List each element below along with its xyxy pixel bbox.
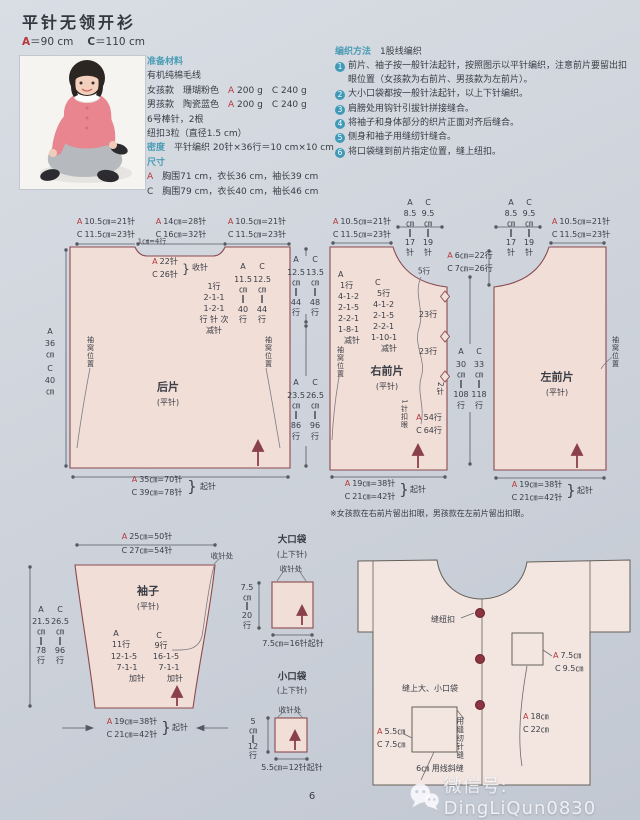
lf-name: 左前片 xyxy=(541,372,574,383)
sleeve-name: 袖子 xyxy=(137,586,159,597)
rf-dec-a-hdr: A xyxy=(338,271,343,279)
page-number: 6 xyxy=(309,792,315,802)
mid-top-unit-a: 行 xyxy=(292,309,300,317)
rf-top-a: A10.5㎝=21针 xyxy=(333,218,391,226)
sleeve-len-eq-c: ‖ xyxy=(58,637,62,645)
rf-dec-c-6: 减针 xyxy=(381,345,397,353)
mid-bot-eq-a: ‖ xyxy=(294,411,298,419)
sleeve-len-eq-a: ‖ xyxy=(39,637,43,645)
rf-dec-c-3: 2-1-5 xyxy=(373,312,394,320)
back-depth-val-c: 12.5 xyxy=(253,276,271,284)
pattern-page: 平针无领开衫 A＝90 cmC＝110 cm xyxy=(0,0,640,820)
mid-top-rows-c: 48 xyxy=(310,299,320,307)
mid-top-hdr-a: A xyxy=(293,256,298,264)
gap-cm-a: ㎝ xyxy=(457,371,465,379)
back-cast-label: 起针 xyxy=(200,483,216,491)
sleeve-inc-c-2: 16-1-5 xyxy=(153,653,179,661)
back-depth-unit-a: 行 xyxy=(239,316,247,324)
back-depth-hdr-c: C xyxy=(259,263,265,271)
lf-sh-sts-a: 17 xyxy=(506,239,516,247)
mid-top-eq-c: ‖ xyxy=(313,288,317,296)
rf-sh-eq-a: ‖ xyxy=(408,229,412,237)
gap-eq-c: ‖ xyxy=(477,380,481,388)
garment-lpocket-a: A5.5㎝ xyxy=(377,728,405,736)
back-len-c: C xyxy=(47,365,53,373)
back-depth-eq-c: ‖ xyxy=(260,295,264,303)
spocket-h-rows: 12 xyxy=(248,743,258,751)
gap-cm-c: ㎝ xyxy=(475,371,483,379)
sleeve-inc-a-hdr: A xyxy=(113,630,118,638)
rf-23r-1: 23行 xyxy=(419,311,437,319)
sleeve-inc-c-1: 9行 xyxy=(154,642,167,650)
sleeve-len-unit-c: 行 xyxy=(56,657,64,665)
lf-cast-brace: } xyxy=(566,484,576,499)
garment-pockets-label: 缝上大、小口袋 xyxy=(402,685,458,693)
back-len-c-val: 40 xyxy=(45,377,55,385)
rf-dec-a-4: 2-2-1 xyxy=(338,315,359,323)
rf-sh-sts-c: 19 xyxy=(423,239,433,247)
lf-sh-cm-a: ㎝ xyxy=(507,220,515,228)
back-name-sub: (平针) xyxy=(157,399,179,407)
sleeve-cast-c: C21㎝=42针 xyxy=(107,731,158,739)
rf-sh-unit-c: 针 xyxy=(424,249,432,257)
back-depth-rows-a: 40 xyxy=(238,306,248,314)
back-neck-brace: } xyxy=(182,263,190,275)
rf-dec-a-1: 1行 xyxy=(340,282,353,290)
spocket-sub: (上下针) xyxy=(277,687,307,695)
back-top-left-a: A10.5㎝=21针 xyxy=(77,218,135,226)
rf-sh-sts-a: 17 xyxy=(405,239,415,247)
lf-sh-val-c: 9.5 xyxy=(523,210,536,218)
rf-23r-2: 23行 xyxy=(419,348,437,356)
rf-dec-a-3: 2-1-5 xyxy=(338,304,359,312)
sleeve-len-val-a: 21.5 xyxy=(32,618,50,626)
gap-unit-a: 行 xyxy=(457,402,465,410)
rf-armhole: 袖窝位置 xyxy=(337,346,344,378)
sleeve-inc-a-4: 加针 xyxy=(129,675,145,683)
lpocket-cast: 7.5㎝=16针起针 xyxy=(262,640,324,648)
lpocket-name: 大口袋 xyxy=(278,535,307,545)
lf-top-c: C11.5㎝=23针 xyxy=(552,231,610,239)
garment-rpocket-c: C9.5㎝ xyxy=(555,665,583,673)
gap-val-a: 30 xyxy=(456,361,466,369)
sleeve-top-c: C27㎝=54针 xyxy=(122,547,173,555)
mid-bot-val-a: 23.5 xyxy=(287,392,305,400)
garment-rpocket-a: A7.5㎝ xyxy=(553,652,581,660)
left-front-piece-shape xyxy=(494,247,606,470)
mid-bot-val-c: 26.5 xyxy=(306,392,324,400)
lf-sh-unit-c: 针 xyxy=(525,249,533,257)
sleeve-len-rows-a: 78 xyxy=(36,647,46,655)
gap-neck-a: A6㎝=22行 xyxy=(447,252,492,260)
lf-sh-cm-c: ㎝ xyxy=(525,220,533,228)
spocket-h-unit: 行 xyxy=(249,752,257,760)
gap-rows-a: 108 xyxy=(453,391,468,399)
spocket-h-val: 5 xyxy=(250,718,255,726)
back-len-c-cm: ㎝ xyxy=(46,388,54,396)
rf-54: A54行 xyxy=(416,414,442,422)
back-top-right-c: C11.5㎝=23针 xyxy=(228,231,286,239)
garment-pos-a: A18㎝ xyxy=(523,713,549,721)
lf-sh-val-a: 8.5 xyxy=(505,210,518,218)
sleeve-inc-c-hdr: C xyxy=(156,632,162,640)
sleeve-inc-c-4: 加针 xyxy=(167,675,183,683)
lf-sh-eq-a: ‖ xyxy=(509,229,513,237)
rf-sh-unit-a: 针 xyxy=(406,249,414,257)
sleeve-len-hdr-a: A xyxy=(38,606,43,614)
sleeve-len-rows-c: 96 xyxy=(55,647,65,655)
back-len-a-val: 36 xyxy=(45,340,55,348)
back-len-a-cm: ㎝ xyxy=(46,351,54,359)
back-cast-a: A35㎝=70针 xyxy=(132,476,183,484)
spocket-name: 小口袋 xyxy=(278,672,307,682)
back-neck-dec-3: 行 针 次 xyxy=(199,316,228,324)
back-depth-cm-c: ㎝ xyxy=(258,286,266,294)
back-neck-dec-2: 1-2-1 xyxy=(203,305,224,313)
rf-sh-val-a: 8.5 xyxy=(404,210,417,218)
spocket-cast: 5.5㎝=12针起针 xyxy=(261,764,323,772)
garment-sew-label: 用缝纫针缝 xyxy=(456,717,464,760)
sleeve-name-sub: (平针) xyxy=(137,603,159,611)
mid-bot-cm-a: ㎝ xyxy=(292,402,300,410)
back-top-right-a: A10.5㎝=21针 xyxy=(228,218,286,226)
rf-name-sub: (平针) xyxy=(376,383,398,391)
rf-name: 右前片 xyxy=(371,366,404,377)
rf-dec-a-5: 1-8-1 xyxy=(338,326,359,334)
sleeve-bindoff: 收针处 xyxy=(211,552,234,560)
back-depth-cm-a: ㎝ xyxy=(239,286,247,294)
rf-dec-c-4: 2-2-1 xyxy=(373,323,394,331)
sleeve-cast-brace: } xyxy=(161,721,171,736)
rf-cast-label: 起针 xyxy=(410,486,426,494)
gap-rows-c: 118 xyxy=(471,391,486,399)
mid-bot-hdr-a: A xyxy=(293,379,298,387)
back-len-a: A xyxy=(47,328,52,336)
mid-bot-unit-c: 行 xyxy=(311,433,319,441)
back-cast-brace: } xyxy=(187,480,197,495)
rf-dec-a-6: 减针 xyxy=(344,337,360,345)
mid-top-cm-a: ㎝ xyxy=(292,279,300,287)
back-name: 后片 xyxy=(157,382,179,393)
rf-dec-c-1: 5行 xyxy=(377,290,390,298)
rf-top-c: C11.5㎝=23针 xyxy=(333,231,391,239)
mid-top-val-a: 12.5 xyxy=(287,269,305,277)
rf-sh-val-c: 9.5 xyxy=(422,210,435,218)
sleeve-len-cm-c: ㎝ xyxy=(56,628,64,636)
lf-armhole: 袖窝位置 xyxy=(612,336,619,368)
back-depth-rows-c: 44 xyxy=(257,306,267,314)
back-top-mid-a: A14㎝=28针 xyxy=(156,218,207,226)
lf-sh-unit-a: 针 xyxy=(507,249,515,257)
mid-top-val-c: 13.5 xyxy=(306,269,324,277)
sleeve-top-a: A25㎝=50针 xyxy=(122,533,173,541)
diagram-shapes xyxy=(0,0,640,820)
rf-neck-5r: 5行 xyxy=(418,267,430,275)
sleeve-len-val-c: 26.5 xyxy=(51,618,69,626)
mid-top-unit-c: 行 xyxy=(311,309,319,317)
back-neck-dec-1: 2-1-1 xyxy=(203,294,224,302)
back-cast-c: C39㎝=78针 xyxy=(132,489,183,497)
gap-unit-c: 行 xyxy=(475,402,483,410)
garment-outline xyxy=(358,560,630,785)
mid-bot-unit-a: 行 xyxy=(292,433,300,441)
lf-sh-eq-c: ‖ xyxy=(527,229,531,237)
garment-button-2 xyxy=(476,655,485,664)
rf-buttonhole: 1针扣眼 xyxy=(401,399,408,428)
mid-bot-cm-c: ㎝ xyxy=(311,402,319,410)
lf-cast-a: A19㎝=38针 xyxy=(512,481,563,489)
lf-sh-hdr-a: A xyxy=(508,199,513,207)
back-neck-dec-row: 1行 xyxy=(207,283,220,291)
mid-bot-rows-a: 86 xyxy=(291,422,301,430)
gap-val-c: 33 xyxy=(474,361,484,369)
wechat-icon xyxy=(408,780,440,812)
mid-bot-eq-c: ‖ xyxy=(313,411,317,419)
sleeve-len-cm-a: ㎝ xyxy=(37,628,45,636)
rf-sh-hdr-c: C xyxy=(425,199,431,207)
lf-top-a: A10.5㎝=21针 xyxy=(552,218,610,226)
back-neck-sts-a: A22针 xyxy=(152,258,178,266)
lpocket-h-unit: 行 xyxy=(243,622,251,630)
rf-64: C64行 xyxy=(416,427,442,435)
rf-dec-a-2: 4-1-2 xyxy=(338,293,359,301)
back-armhole-right: 袖窝位置 xyxy=(265,336,272,368)
back-depth-hdr-a: A xyxy=(240,263,245,271)
lf-name-sub: (平针) xyxy=(546,389,568,397)
mid-bot-hdr-c: C xyxy=(312,379,318,387)
rf-dec-c-5: 1-10-1 xyxy=(371,334,397,342)
garment-pos-c: C22㎝ xyxy=(523,726,549,734)
garment-lpocket-c: C7.5㎝ xyxy=(377,741,405,749)
lpocket-bindoff: 收针处 xyxy=(280,565,303,573)
lf-cast-label: 起针 xyxy=(577,487,593,495)
watermark: 微信号: DingLiQun0830 xyxy=(408,772,640,819)
rf-sh-hdr-a: A xyxy=(407,199,412,207)
gap-hdr-a: A xyxy=(458,348,463,356)
lf-sh-sts-c: 19 xyxy=(524,239,534,247)
rf-2st: 2针 xyxy=(436,382,444,396)
back-neck-bindoff: 收针 xyxy=(192,264,208,272)
sleeve-len-unit-a: 行 xyxy=(37,657,45,665)
back-armhole-left: 袖窝位置 xyxy=(87,336,94,368)
back-depth-eq-a: ‖ xyxy=(241,295,245,303)
rf-sh-cm-c: ㎝ xyxy=(424,220,432,228)
lpocket-h-eq: ‖ xyxy=(245,602,249,610)
rf-cast-brace: } xyxy=(399,483,409,498)
back-neck-sts-c: C26针 xyxy=(152,271,178,279)
rf-cast-a: A19㎝=38针 xyxy=(345,480,396,488)
sleeve-cast-a: A19㎝=38针 xyxy=(107,718,158,726)
rf-dec-c-2: 4-1-2 xyxy=(373,301,394,309)
sleeve-inc-a-1: 11行 xyxy=(112,641,130,649)
lf-sh-hdr-c: C xyxy=(526,199,532,207)
garment-button-label: 缝纽扣 xyxy=(431,616,455,624)
mid-top-cm-c: ㎝ xyxy=(311,279,319,287)
rf-sh-cm-a: ㎝ xyxy=(406,220,414,228)
back-neck-dec-4: 减针 xyxy=(206,327,222,335)
sleeve-cast-label: 起针 xyxy=(172,724,188,732)
mid-top-rows-a: 44 xyxy=(291,299,301,307)
back-neck-rows: 1㎝=4行 xyxy=(138,239,167,246)
small-pocket-shape xyxy=(275,718,307,752)
large-pocket-shape xyxy=(272,582,313,628)
assembled-garment xyxy=(358,560,630,785)
mid-top-hdr-c: C xyxy=(312,256,318,264)
gap-neck-c: C7㎝=26行 xyxy=(447,265,493,273)
back-depth-val-a: 11.5 xyxy=(234,276,252,284)
watermark-text: 微信号: DingLiQun0830 xyxy=(444,772,640,819)
garment-button-1 xyxy=(476,609,485,618)
note-buttonhole: ※女孩款在右前片留出扣眼，男孩款在左前片留出扣眼。 xyxy=(330,510,529,518)
spocket-bindoff: 收针处 xyxy=(279,706,302,714)
rf-sh-eq-c: ‖ xyxy=(426,229,430,237)
sleeve-inc-a-2: 12-1-5 xyxy=(111,653,137,661)
gap-eq-a: ‖ xyxy=(459,380,463,388)
sleeve-inc-c-3: 7-1-1 xyxy=(158,664,179,672)
back-depth-unit-c: 行 xyxy=(258,316,266,324)
lf-cast-c: C21㎝=42针 xyxy=(512,494,563,502)
lpocket-h-rows: 20 xyxy=(242,612,252,620)
lpocket-sub: (上下针) xyxy=(277,551,307,559)
rf-cast-c: C21㎝=42针 xyxy=(345,493,396,501)
mid-bot-rows-c: 96 xyxy=(310,422,320,430)
rf-dec-c-hdr: C xyxy=(375,279,381,287)
gap-hdr-c: C xyxy=(476,348,482,356)
mid-top-eq-a: ‖ xyxy=(294,288,298,296)
sleeve-len-hdr-c: C xyxy=(57,606,63,614)
lpocket-h-val: 7.5 xyxy=(241,584,254,592)
back-top-left-c: C11.5㎝=23针 xyxy=(77,231,135,239)
garment-button-3 xyxy=(476,701,485,710)
sleeve-inc-a-3: 7-1-1 xyxy=(116,664,137,672)
